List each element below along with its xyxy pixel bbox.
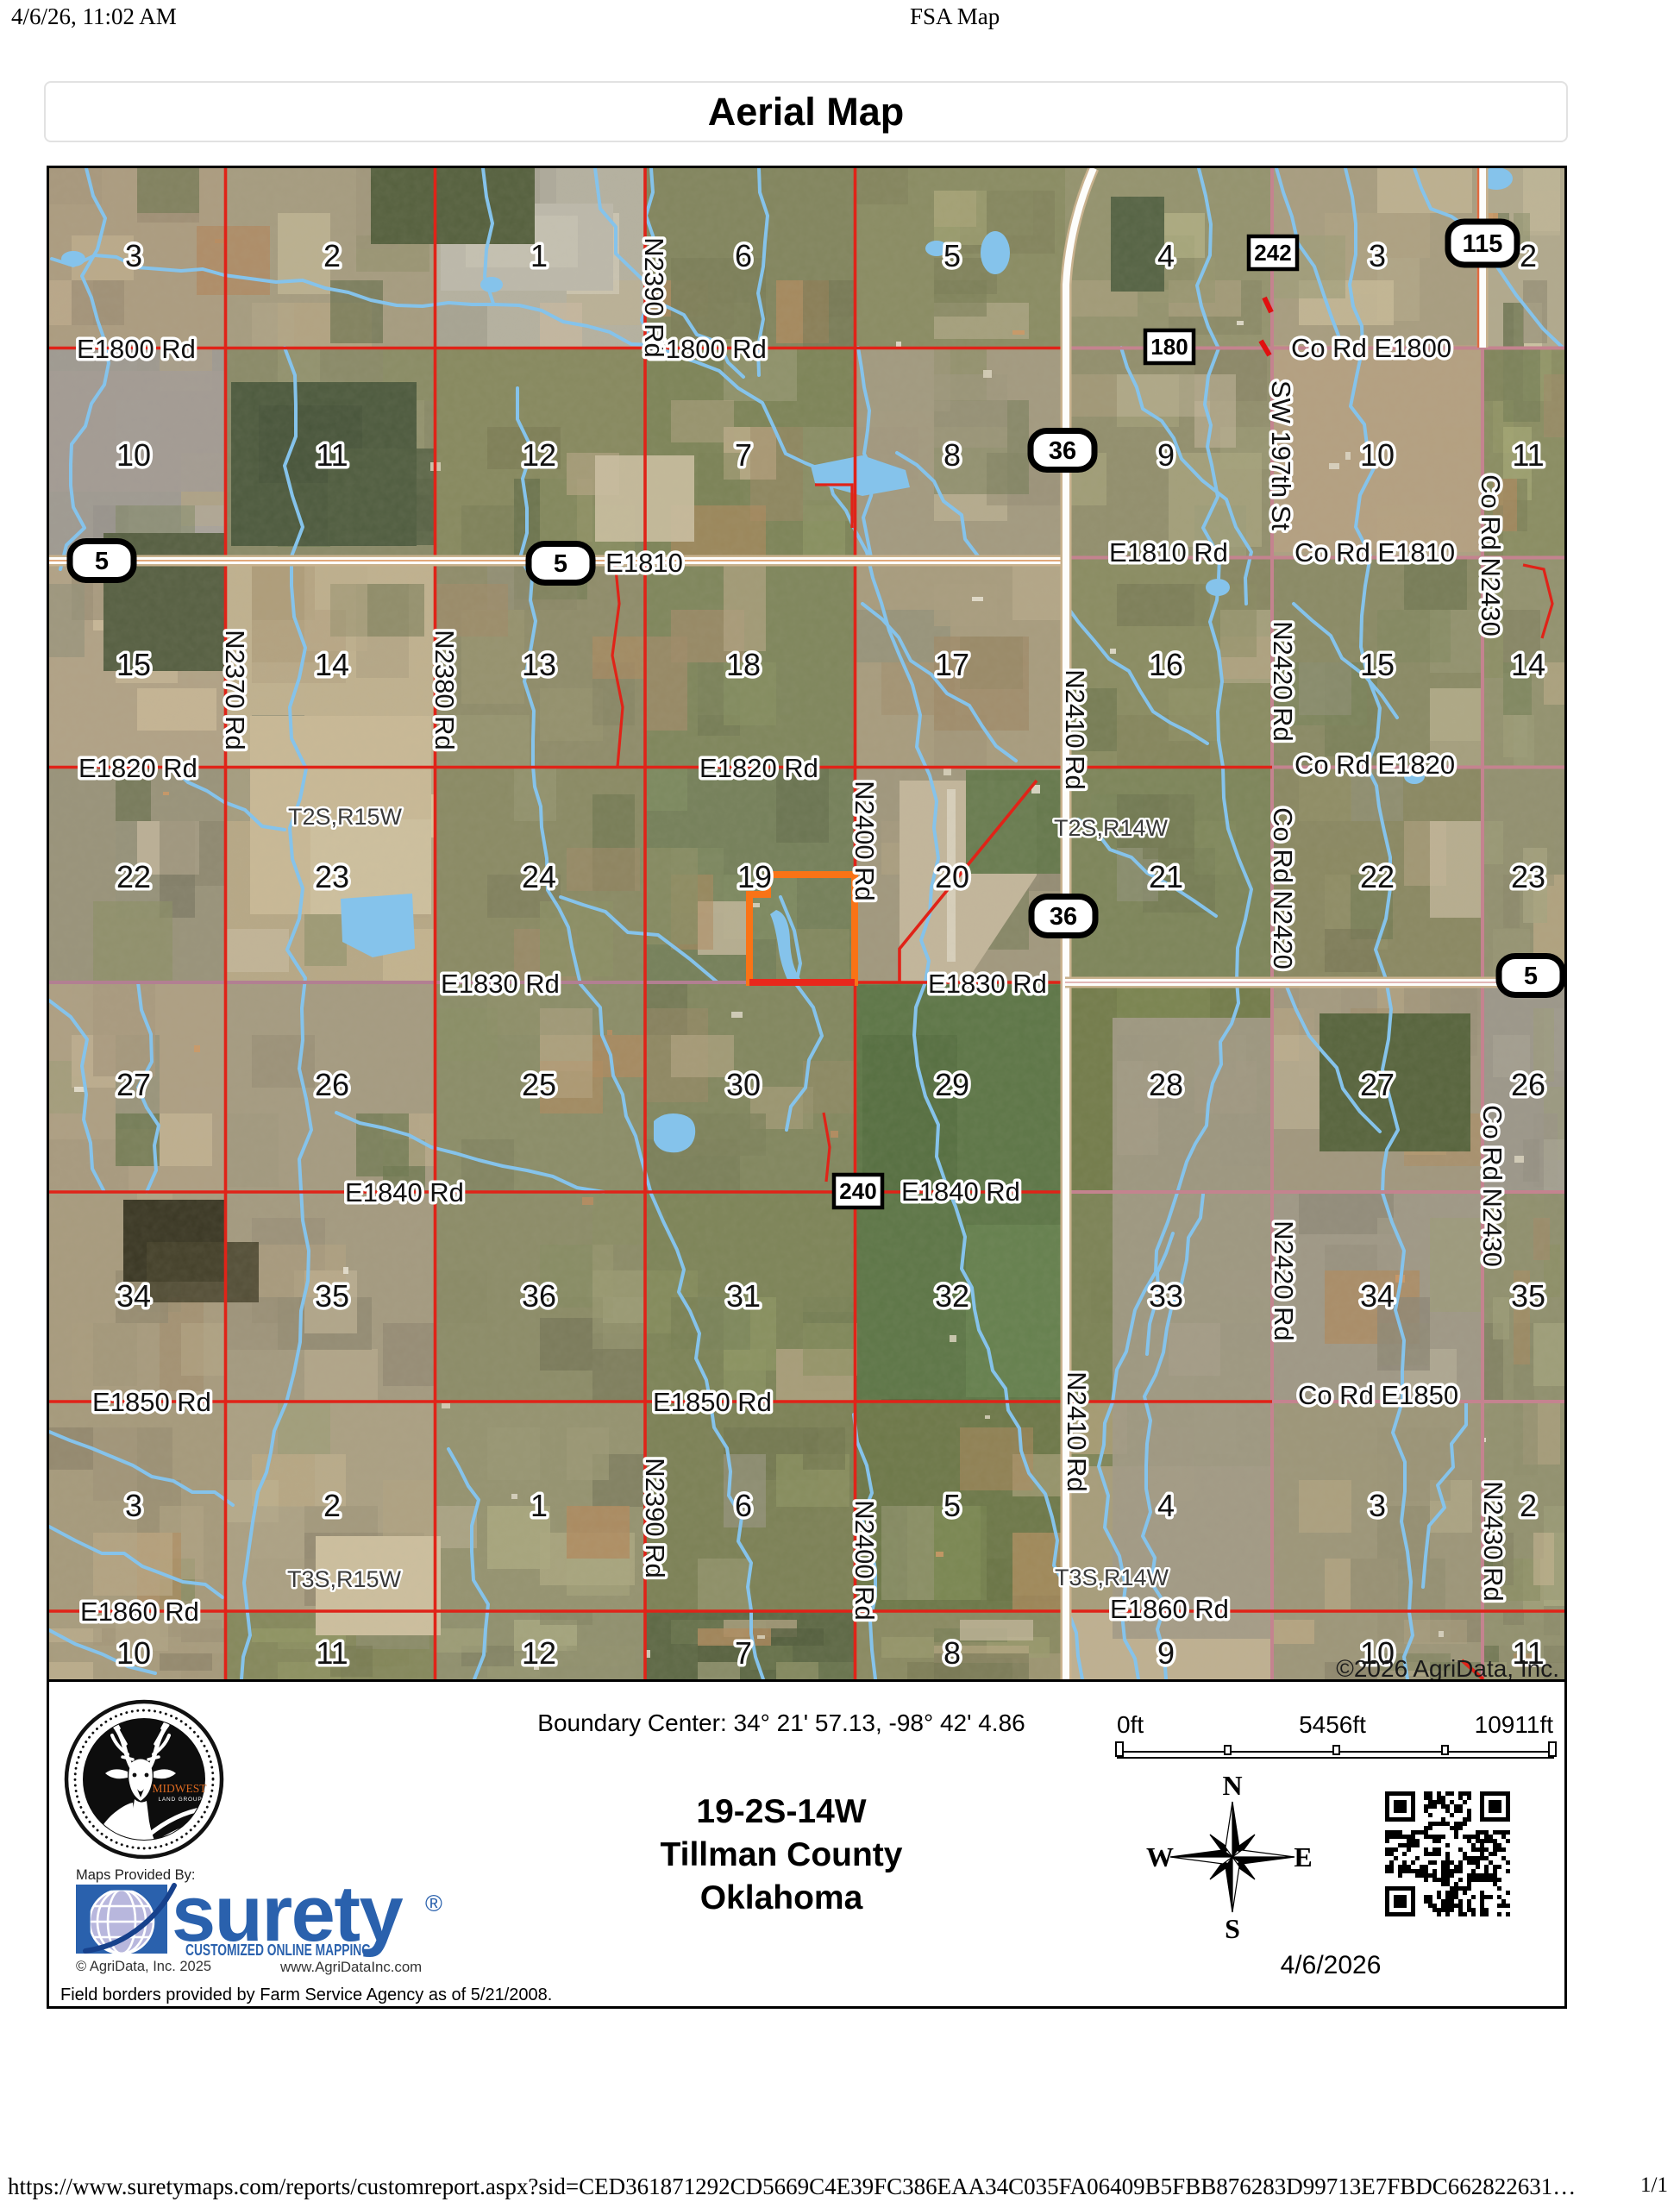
svg-text:3: 3	[125, 238, 142, 273]
svg-text:T3S,R14W: T3S,R14W	[1055, 1565, 1169, 1590]
svg-text:MIDWEST: MIDWEST	[153, 1782, 208, 1795]
svg-text:35: 35	[1511, 1278, 1545, 1314]
svg-text:15: 15	[116, 647, 151, 682]
svg-text:1: 1	[530, 1488, 548, 1523]
svg-text:4: 4	[1157, 238, 1175, 273]
svg-text:3: 3	[1369, 238, 1386, 273]
svg-text:2: 2	[323, 238, 341, 273]
svg-text:13: 13	[522, 647, 556, 682]
svg-text:5: 5	[943, 1488, 961, 1523]
svg-text:N2430 Rd: N2430 Rd	[1478, 1481, 1508, 1602]
svg-text:115: 115	[1463, 230, 1503, 258]
svg-text:27: 27	[116, 1067, 151, 1102]
svg-text:E: E	[1294, 1841, 1312, 1872]
svg-text:17: 17	[935, 647, 969, 682]
svg-text:35: 35	[315, 1278, 349, 1314]
svg-text:10: 10	[116, 1635, 151, 1671]
svg-text:CUSTOMIZED ONLINE MAPPING: CUSTOMIZED ONLINE MAPPING	[185, 1941, 371, 1959]
svg-text:21: 21	[1149, 859, 1183, 894]
svg-text:14: 14	[315, 647, 349, 682]
svg-text:27: 27	[1360, 1067, 1395, 1102]
svg-text:N2370 Rd: N2370 Rd	[220, 630, 250, 750]
svg-text:25: 25	[522, 1067, 556, 1102]
svg-text:7: 7	[735, 1635, 752, 1671]
svg-text:28: 28	[1149, 1067, 1183, 1102]
svg-text:240: 240	[839, 1178, 876, 1204]
svg-text:5: 5	[1524, 963, 1538, 990]
svg-text:30: 30	[726, 1067, 761, 1102]
svg-text:E1840 Rd: E1840 Rd	[901, 1176, 1020, 1207]
svg-text:6: 6	[735, 1488, 752, 1523]
svg-text:E1810: E1810	[605, 548, 683, 578]
svg-text:N2410 Rd: N2410 Rd	[1060, 669, 1090, 790]
svg-text:5: 5	[554, 550, 567, 578]
svg-text:4: 4	[1157, 1488, 1175, 1523]
svg-text:15: 15	[1360, 647, 1395, 682]
svg-text:12: 12	[522, 1635, 556, 1671]
svg-text:E1810 Rd: E1810 Rd	[1109, 537, 1228, 568]
svg-text:1: 1	[530, 238, 548, 273]
svg-text:E1820 Rd: E1820 Rd	[699, 753, 818, 783]
svg-text:S: S	[1225, 1913, 1240, 1943]
svg-text:N2400 Rd: N2400 Rd	[849, 1500, 880, 1621]
svg-text:16: 16	[1149, 647, 1183, 682]
svg-text:7: 7	[735, 437, 752, 473]
svg-text:10: 10	[1360, 437, 1395, 473]
svg-text:E1830 Rd: E1830 Rd	[928, 969, 1047, 999]
svg-text:Co Rd E1850: Co Rd E1850	[1298, 1380, 1458, 1410]
svg-text:N2410 Rd: N2410 Rd	[1062, 1371, 1092, 1492]
svg-text:E1840 Rd: E1840 Rd	[345, 1177, 464, 1207]
svg-text:8: 8	[943, 437, 961, 473]
svg-text:180: 180	[1150, 334, 1188, 360]
svg-text:N2390 Rd: N2390 Rd	[639, 237, 669, 358]
svg-text:19: 19	[737, 859, 772, 894]
svg-text:36: 36	[1049, 437, 1076, 465]
svg-text:T3S,R15W: T3S,R15W	[287, 1566, 402, 1592]
svg-text:©2026 AgriData, Inc.: ©2026 AgriData, Inc.	[1336, 1655, 1559, 1679]
svg-text:T2S,R15W: T2S,R15W	[288, 804, 403, 830]
svg-text:32: 32	[935, 1278, 969, 1314]
svg-text:LAND GROUP: LAND GROUP	[159, 1797, 203, 1803]
svg-text:T2S,R14W: T2S,R14W	[1054, 815, 1169, 841]
svg-text:2: 2	[1520, 1488, 1537, 1523]
svg-text:Co Rd E1820: Co Rd E1820	[1294, 750, 1455, 780]
svg-text:33: 33	[1149, 1278, 1183, 1314]
svg-text:3: 3	[125, 1488, 142, 1523]
svg-text:5: 5	[943, 238, 961, 273]
svg-text:11: 11	[316, 437, 348, 473]
svg-text:9: 9	[1157, 437, 1175, 473]
svg-text:N2420 Rd: N2420 Rd	[1269, 1220, 1299, 1341]
svg-text:5: 5	[95, 548, 109, 575]
svg-text:11: 11	[1512, 437, 1544, 473]
svg-text:N: N	[1222, 1771, 1242, 1801]
svg-text:18: 18	[726, 647, 761, 682]
svg-text:36: 36	[522, 1278, 556, 1314]
svg-text:29: 29	[935, 1067, 969, 1102]
svg-text:22: 22	[116, 859, 151, 894]
svg-text:E1860 Rd: E1860 Rd	[1110, 1594, 1229, 1624]
svg-text:23: 23	[315, 859, 349, 894]
svg-text:24: 24	[522, 859, 556, 894]
svg-text:E1850 Rd: E1850 Rd	[92, 1387, 211, 1417]
svg-text:E1860 Rd: E1860 Rd	[80, 1596, 199, 1627]
svg-text:22: 22	[1360, 859, 1395, 894]
svg-text:34: 34	[1360, 1278, 1395, 1314]
svg-text:6: 6	[735, 238, 752, 273]
svg-text:9: 9	[1157, 1635, 1175, 1671]
svg-text:26: 26	[315, 1067, 349, 1102]
svg-text:8: 8	[943, 1635, 961, 1671]
svg-text:2: 2	[323, 1488, 341, 1523]
svg-text:N2420 Rd: N2420 Rd	[1268, 621, 1298, 742]
svg-text:31: 31	[726, 1278, 761, 1314]
svg-text:10: 10	[116, 437, 151, 473]
svg-text:242: 242	[1254, 240, 1291, 266]
svg-text:W: W	[1146, 1841, 1174, 1872]
svg-text:Co Rd E1800: Co Rd E1800	[1291, 333, 1451, 363]
svg-text:N2380 Rd: N2380 Rd	[429, 630, 460, 750]
svg-text:36: 36	[1050, 903, 1077, 931]
svg-text:E1850 Rd: E1850 Rd	[653, 1387, 772, 1417]
svg-text:34: 34	[116, 1278, 151, 1314]
svg-text:N2400 Rd: N2400 Rd	[849, 781, 880, 901]
svg-text:Co Rd N2420: Co Rd N2420	[1268, 807, 1298, 969]
svg-text:Co Rd N2430: Co Rd N2430	[1477, 1105, 1508, 1267]
svg-text:20: 20	[935, 859, 969, 894]
svg-text:Co Rd E1810: Co Rd E1810	[1294, 537, 1455, 568]
svg-text:11: 11	[316, 1635, 348, 1671]
svg-text:14: 14	[1511, 647, 1545, 682]
svg-text:E1800 Rd: E1800 Rd	[77, 334, 196, 364]
svg-text:®: ®	[425, 1891, 442, 1916]
svg-text:12: 12	[522, 437, 556, 473]
svg-text:E1820 Rd: E1820 Rd	[78, 753, 197, 783]
svg-text:2: 2	[1520, 238, 1537, 273]
svg-text:Co Rd N2430: Co Rd N2430	[1476, 474, 1506, 637]
svg-text:SW 197th St: SW 197th St	[1266, 380, 1296, 530]
svg-text:E1830 Rd: E1830 Rd	[441, 969, 560, 999]
svg-text:3: 3	[1369, 1488, 1386, 1523]
svg-text:26: 26	[1511, 1067, 1545, 1102]
svg-text:23: 23	[1511, 859, 1545, 894]
svg-text:N2390 Rd: N2390 Rd	[640, 1458, 670, 1578]
